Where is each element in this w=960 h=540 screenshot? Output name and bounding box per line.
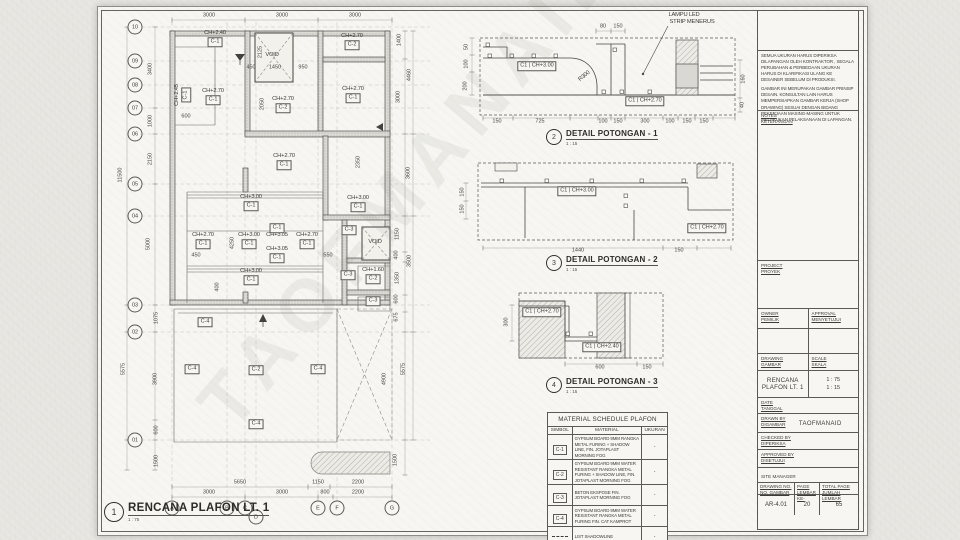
dimension-label: 2200 — [352, 480, 364, 486]
detail-dimension-label: 150 — [613, 24, 622, 30]
schedule-material-cell: GYPSUM BOARD 9MM RANGKA METAL FURING + S… — [572, 435, 642, 460]
ceiling-height-label: CH+3.00 — [240, 269, 262, 275]
grid-bubble-F: F — [330, 501, 345, 516]
grid-bubble-02: 02 — [128, 325, 143, 340]
detail-annotation: R300 — [578, 71, 592, 84]
scale-label2: SKALA — [812, 362, 827, 367]
dimension-label: 675 — [394, 312, 400, 321]
ceiling-height-label: CH+2.70 — [273, 154, 295, 160]
ceiling-height-label: CH+2.70 — [296, 233, 318, 239]
dimension-label: 4250 — [230, 237, 236, 249]
dimension-label: 2050 — [260, 98, 266, 110]
drawing-scale-box: DRAWING GAMBAR SCALE SKALA — [758, 354, 858, 371]
ceiling-code-label: C-3 — [366, 296, 381, 306]
schedule-symbol-cell: C-4 — [548, 506, 573, 527]
approval-label: APPROVAL — [812, 311, 836, 316]
dimension-label: 3900 — [153, 373, 159, 385]
view-number-bubble: 4 — [546, 377, 562, 393]
schedule-row: LIST SHADOWLINE- — [548, 527, 668, 540]
detail-annotation: STRIP MENERUS — [670, 20, 715, 26]
scale-value-2: 1 : 15 — [812, 384, 856, 392]
view-scale-label: 1 : 75 — [128, 517, 269, 522]
detail-dimension-label: 100 — [464, 59, 470, 68]
ceiling-code-label: C-1 — [244, 275, 259, 285]
grid-bubble-05: 05 — [128, 177, 143, 192]
detail-annotation: LAMPU LED — [668, 13, 699, 19]
ceiling-code-label: C-2 — [276, 103, 291, 113]
owner-approval-box: OWNER PEMILIK APPROVAL MENYETUJUI — [758, 309, 858, 329]
ceiling-height-label: CH+1.60 — [362, 268, 384, 274]
detail-dimension-label: 50 — [464, 44, 470, 50]
symbol-box: C-1 — [553, 445, 567, 455]
view-scale-label: 1 : 15 — [566, 389, 658, 394]
detail-code-label: C1 | CH+3.00 — [517, 61, 556, 71]
approved-label2: DISETUJUI — [761, 458, 855, 464]
view-title: 1RENCANA PLAFON LT. 11 : 75 — [104, 502, 269, 522]
schedule-material-cell: GYPSUM BOARD 9MM WATER RESISTANT RANGKA … — [572, 460, 642, 485]
ceiling-code-label: C-3 — [342, 225, 357, 235]
schedule-material-cell: LIST SHADOWLINE — [572, 527, 642, 540]
detail-code-label: C1 | CH+2.70 — [522, 307, 561, 317]
grid-bubble-03: 03 — [128, 298, 143, 313]
project-label2: PROYEK — [761, 269, 855, 275]
grid-bubble-09: 09 — [128, 54, 143, 69]
dimension-label: 1000 — [148, 115, 154, 127]
scale-value-1: 1 : 75 — [812, 376, 856, 384]
detail-dimension-label: 150 — [699, 119, 708, 125]
detail-dimension-label: 100 — [665, 119, 674, 125]
dimension-label: 450 — [246, 65, 255, 71]
detail-dimension-label: 150 — [613, 119, 622, 125]
ceiling-height-label: VOID — [368, 240, 381, 246]
ceiling-code-label: C-4 — [198, 317, 213, 327]
ceiling-height-label: CH+2.70 — [342, 87, 364, 93]
page-label: PAGE — [797, 484, 809, 489]
grid-bubble-06: 06 — [128, 127, 143, 142]
schedule-size-cell: - — [642, 506, 668, 527]
dimension-label: 400 — [394, 250, 400, 259]
drawing-no-value: AR-4.01 — [758, 495, 794, 515]
dimension-label: 3600 — [406, 167, 412, 179]
dimension-label: 400 — [215, 282, 221, 291]
dimension-label: 450 — [191, 253, 200, 259]
dimension-label: 5575 — [401, 363, 407, 375]
ceiling-code-label: C-1 — [242, 239, 257, 249]
dimension-label: 5650 — [234, 480, 246, 486]
ceiling-height-label: CH+3.05 — [266, 247, 288, 253]
drawing-label2: GAMBAR — [761, 362, 781, 367]
view-title-label: DETAIL POTONGAN - 1 — [566, 129, 658, 140]
ceiling-code-label: C-1 — [351, 202, 366, 212]
ceiling-code-label: C-2 — [345, 40, 360, 50]
view-scale-label: 1 : 15 — [566, 267, 658, 272]
ceiling-code-label: C-3 — [341, 270, 356, 280]
detail-dimension-label: 150 — [460, 187, 466, 196]
detail-dimension-label: 300 — [504, 317, 510, 326]
detail-dimension-label: 150 — [674, 248, 683, 254]
ceiling-code-label: C-4 — [249, 419, 264, 429]
detail-code-label: C1 | CH+3.00 — [557, 186, 596, 196]
schedule-symbol-cell: C-2 — [548, 460, 573, 485]
detail-dimension-label: 150 — [682, 119, 691, 125]
grid-bubble-G: G — [385, 501, 400, 516]
approved-by-box: APPROVED BY DISETUJUI — [758, 450, 858, 468]
drawn-label2: DIGAMBAR — [761, 422, 786, 427]
grid-bubble-07: 07 — [128, 101, 143, 116]
view-title-label: RENCANA PLAFON LT. 1 — [128, 502, 269, 516]
dimension-label: 1400 — [397, 34, 403, 46]
ceiling-code-label: C-1 — [277, 160, 292, 170]
project-box: PROJECT PROYEK — [758, 261, 858, 309]
ceiling-code-label: C-1 — [208, 37, 223, 47]
note-paragraph-1: SEMUA UKURAN HARUS DIPERIKSA DILAPANGAN … — [761, 53, 855, 83]
site-manager-label: SITE MANAGER — [761, 474, 855, 479]
signature-space — [758, 329, 858, 354]
ceiling-code-label: C-1 — [196, 239, 211, 249]
schedule-col-material: MATERIAL — [572, 427, 642, 435]
dimension-label: 3000 — [349, 13, 361, 19]
ceiling-code-label: C-1 — [346, 93, 361, 103]
dimension-label: 4900 — [382, 373, 388, 385]
schedule-material-cell: GYPSUM BOARD 9MM WATER RESISTANT RANGKA … — [572, 506, 642, 527]
detail-dimension-label: 150 — [492, 119, 501, 125]
view-number-bubble: 1 — [104, 502, 124, 522]
dimension-label: 800 — [320, 490, 329, 496]
dimension-label: 1450 — [269, 65, 281, 71]
schedule-size-cell: - — [642, 435, 668, 460]
symbol-box: C-3 — [553, 493, 567, 503]
no-label: DRAWING NO. — [760, 484, 791, 489]
ceiling-code-label: C-1 — [270, 223, 285, 233]
ceiling-height-label: CH+2.70 — [192, 233, 214, 239]
detail-dimension-label: 80 — [600, 24, 606, 30]
detail-dimension-label: 600 — [595, 365, 604, 371]
dimension-label: 4460 — [407, 69, 413, 81]
date-label2: TANGGAL — [761, 406, 855, 412]
view-number-bubble: 2 — [546, 129, 562, 145]
ceiling-code-label: C-4 — [185, 364, 200, 374]
detail-dimension-label: 1440 — [572, 248, 584, 254]
view-title: 4DETAIL POTONGAN - 31 : 15 — [546, 377, 658, 394]
dimension-label: 1500 — [393, 454, 399, 466]
drawn-by-box: DRAWN BY DIGAMBAR TAOFMANAID — [758, 414, 858, 433]
schedule-size-cell: - — [642, 527, 668, 540]
schedule-row: C-3BETON EKSPOSE FIN. JOTAPLAST MORNING … — [548, 485, 668, 506]
detail-dimension-label: 200 — [463, 81, 469, 90]
grid-bubble-E: E — [311, 501, 326, 516]
no-label2: NO. GAMBAR — [760, 490, 789, 495]
ceiling-code-label: C-4 — [311, 364, 326, 374]
ceiling-height-label: CH+2.70 — [272, 97, 294, 103]
detail-dimension-label: 150 — [642, 365, 651, 371]
schedule-row: C-2GYPSUM BOARD 9MM WATER RESISTANT RANG… — [548, 460, 668, 485]
date-box: DATE TANGGAL — [758, 398, 858, 414]
dimension-label: 1150 — [312, 480, 324, 486]
detail-dimension-label: 40 — [740, 102, 746, 108]
dimension-label: 2200 — [352, 490, 364, 496]
dimension-label: 2125 — [258, 46, 264, 58]
checked-label2: DIPERIKSA — [761, 441, 855, 447]
owner-label2: PEMILIK — [761, 317, 779, 322]
drawing-canvas: TAOFMANAID 30003000300011500557534001000… — [0, 0, 960, 540]
notes-text-box: SEMUA UKURAN HARUS DIPERIKSA DILAPANGAN … — [758, 51, 858, 111]
dimension-label: 2350 — [356, 156, 362, 168]
dimension-label: 5575 — [121, 363, 127, 375]
drawing-name-value: RENCANA PLAFON LT. 1 — [758, 371, 808, 397]
notes-keterangan-box: NOTES KETERANGAN — [758, 111, 858, 261]
schedule-material-cell: BETON EKSPOSE FIN. JOTAPLAST MORNING FOG — [572, 485, 642, 506]
detail-code-label: C1 | CH+2.70 — [687, 223, 726, 233]
schedule-row: C-4GYPSUM BOARD 9MM WATER RESISTANT RANG… — [548, 506, 668, 527]
title-block: SEMUA UKURAN HARUS DIPERIKSA DILAPANGAN … — [757, 10, 859, 530]
detail-dimension-label: 300 — [640, 119, 649, 125]
dimension-label: 3000 — [276, 13, 288, 19]
owner-label: OWNER — [761, 311, 779, 316]
ceiling-height-label: CH+2.70 — [341, 34, 363, 40]
dimension-label: 11500 — [118, 168, 124, 183]
dimension-label: 3000 — [203, 490, 215, 496]
checked-by-box: CHECKED BY DIPERIKSA — [758, 433, 858, 450]
schedule-size-cell: - — [642, 485, 668, 506]
dimension-label: 5000 — [146, 238, 152, 250]
grid-bubble-10: 10 — [128, 20, 143, 35]
view-title: 2DETAIL POTONGAN - 11 : 15 — [546, 129, 658, 146]
logo-box — [758, 11, 858, 51]
schedule-col-ukuran: UKURAN — [642, 427, 668, 435]
detail-dimension-label: 160 — [741, 74, 747, 83]
drawn-label: DRAWN BY — [761, 416, 786, 421]
view-title: 3DETAIL POTONGAN - 21 : 15 — [546, 255, 658, 272]
ceiling-code-label: C-1 — [270, 253, 285, 263]
view-scale-label: 1 : 15 — [566, 141, 658, 146]
dimension-label: 600 — [181, 114, 190, 120]
ceiling-code-label: C-1 — [244, 201, 259, 211]
symbol-box: C-2 — [553, 470, 567, 480]
ceiling-height-label: CH+2.40 — [204, 31, 226, 37]
dimension-label: 2150 — [148, 153, 154, 165]
grid-bubble-04: 04 — [128, 209, 143, 224]
drawing-label: DRAWING — [761, 356, 783, 361]
detail-code-label: C1 | CH+2.40 — [582, 342, 621, 352]
detail-dimension-label: 100 — [598, 119, 607, 125]
schedule-title: MATERIAL SCHEDULE PLAFON — [548, 413, 668, 427]
ceiling-code-label: C-1 — [300, 239, 315, 249]
ceiling-code-label: C-1 — [181, 88, 191, 103]
grid-bubble-08: 08 — [128, 78, 143, 93]
grid-bubble-01: 01 — [128, 433, 143, 448]
scale-label: SCALE — [812, 356, 827, 361]
ceiling-height-label: CH+3.00 — [347, 196, 369, 202]
ceiling-height-label: CH+2.45 — [175, 84, 181, 106]
dimension-label: 3500 — [407, 255, 413, 267]
ceiling-height-label: CH+3.00 — [240, 195, 262, 201]
total-label2: JUMLAH LEMBAR — [822, 490, 841, 501]
number-header-row: DRAWING NO. NO. GAMBAR PAGE LEMBAR KE- T… — [758, 483, 858, 495]
dimension-label: 3000 — [203, 13, 215, 19]
schedule-symbol-cell — [548, 527, 573, 540]
dimension-label: 950 — [298, 65, 307, 71]
material-schedule-table: MATERIAL SCHEDULE PLAFON SIMBOL MATERIAL… — [547, 412, 668, 540]
dimension-label: 1075 — [154, 312, 160, 324]
symbol-box: C-4 — [553, 514, 567, 524]
dimension-label: 600 — [154, 425, 160, 434]
dimension-label: 1350 — [395, 272, 401, 284]
view-title-label: DETAIL POTONGAN - 2 — [566, 255, 658, 266]
ceiling-code-label: C-1 — [206, 95, 221, 105]
total-label: TOTAL PAGE — [822, 484, 850, 489]
dimension-label: 3000 — [276, 490, 288, 496]
notes-label2: KETERANGAN — [761, 119, 855, 125]
ceiling-code-label: C-2 — [249, 365, 264, 375]
number-value-row: AR-4.01 20 65 — [758, 495, 858, 515]
shadowline-symbol — [552, 536, 568, 537]
dimension-label: 1500 — [154, 455, 160, 467]
dimension-label: 600 — [394, 294, 400, 303]
ceiling-height-label: CH+2.70 — [202, 89, 224, 95]
schedule-size-cell: - — [642, 460, 668, 485]
dimension-label: 1150 — [395, 228, 401, 240]
dimension-label: 3000 — [396, 91, 402, 103]
dimension-label: 550 — [323, 253, 332, 259]
schedule-symbol-cell: C-1 — [548, 435, 573, 460]
dimension-label: 3400 — [148, 63, 154, 75]
detail-dimension-label: 725 — [535, 119, 544, 125]
approval-label2: MENYETUJUI — [812, 317, 841, 322]
drawing-name-box: RENCANA PLAFON LT. 1 1 : 75 1 : 15 — [758, 371, 858, 398]
view-number-bubble: 3 — [546, 255, 562, 271]
view-title-label: DETAIL POTONGAN - 3 — [566, 377, 658, 388]
detail-code-label: C1 | CH+2.70 — [625, 96, 664, 106]
ceiling-height-label: CH+3.05 — [266, 233, 288, 239]
ceiling-code-label: C-2 — [366, 274, 381, 284]
schedule-col-simbol: SIMBOL — [548, 427, 573, 435]
schedule-row: C-1GYPSUM BOARD 9MM RANGKA METAL FURING … — [548, 435, 668, 460]
ceiling-height-label: VOID — [265, 53, 278, 59]
ceiling-height-label: CH+3.00 — [238, 233, 260, 239]
schedule-symbol-cell: C-3 — [548, 485, 573, 506]
detail-dimension-label: 150 — [460, 204, 466, 213]
site-manager-box: SITE MANAGER — [758, 468, 858, 483]
